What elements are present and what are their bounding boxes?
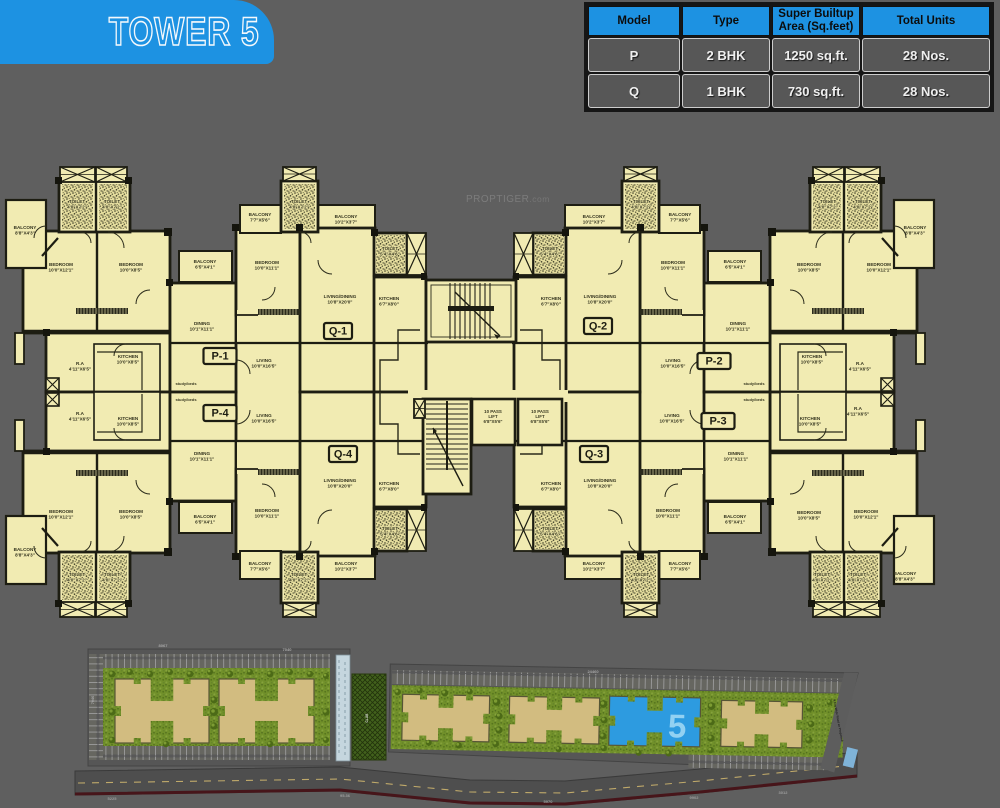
svg-text:KITCHEN6'7"X8'0": KITCHEN6'7"X8'0": [541, 296, 562, 306]
svg-text:KITCHEN6'7"X8'0": KITCHEN6'7"X8'0": [379, 296, 400, 306]
svg-text:BALCONY10'2"X3'7": BALCONY10'2"X3'7": [583, 561, 606, 571]
svg-text:5225: 5225: [108, 796, 118, 801]
svg-text:BALCONY6'5"X4'1": BALCONY6'5"X4'1": [194, 514, 217, 524]
svg-text:BALCONY10'2"X3'7": BALCONY10'2"X3'7": [335, 214, 358, 224]
svg-text:Q-2: Q-2: [589, 321, 607, 333]
svg-text:Q-4: Q-4: [334, 449, 353, 461]
svg-text:LIVING/DINING10'8"X20'0": LIVING/DINING10'8"X20'0": [584, 478, 617, 488]
svg-text:BEDROOM10'0"X8'5": BEDROOM10'0"X8'5": [119, 262, 143, 272]
svg-text:BALCONY6'5"X4'1": BALCONY6'5"X4'1": [194, 259, 217, 269]
svg-text:Q-1: Q-1: [329, 326, 347, 338]
svg-text:BALCONY8'8"X4'3": BALCONY8'8"X4'3": [14, 225, 37, 235]
svg-text:TOILET4'0"X7'2": TOILET4'0"X7'2": [67, 199, 87, 209]
svg-text:BEDROOM10'0"X11'1": BEDROOM10'0"X11'1": [656, 508, 681, 518]
svg-text:BEDROOM10'0"X12'1": BEDROOM10'0"X12'1": [49, 509, 74, 519]
svg-text:BALCONY6'5"X4'1": BALCONY6'5"X4'1": [724, 514, 747, 524]
svg-text:BALCONY8'8"X4'3": BALCONY8'8"X4'3": [904, 225, 927, 235]
svg-text:BALCONY6'5"X4'1": BALCONY6'5"X4'1": [724, 259, 747, 269]
svg-text:BEDROOM10'0"X11'1": BEDROOM10'0"X11'1": [255, 508, 280, 518]
svg-text:95.36: 95.36: [340, 793, 351, 798]
svg-text:BEDROOM10'0"X12'1": BEDROOM10'0"X12'1": [867, 262, 892, 272]
svg-text:CLUB: CLUB: [365, 713, 369, 723]
svg-text:BALCONY8'8"X4'3": BALCONY8'8"X4'3": [14, 547, 37, 557]
svg-text:5970: 5970: [544, 799, 554, 804]
svg-text:TOILET4'0"X7'2": TOILET4'0"X7'2": [853, 199, 873, 209]
svg-text:7040: 7040: [283, 647, 293, 652]
svg-text:KITCHEN10'0"X8'5": KITCHEN10'0"X8'5": [117, 416, 139, 426]
svg-text:P-2: P-2: [705, 356, 722, 368]
svg-text:BEDROOM10'0"X8'5": BEDROOM10'0"X8'5": [119, 509, 143, 519]
svg-text:LIVING/DINING10'8"X20'0": LIVING/DINING10'8"X20'0": [584, 294, 617, 304]
svg-text:KITCHEN6'7"X8'0": KITCHEN6'7"X8'0": [379, 481, 400, 491]
svg-text:BEDROOM10'0"X11'1": BEDROOM10'0"X11'1": [255, 260, 280, 270]
svg-text:7046: 7046: [91, 696, 95, 704]
svg-text:TOILET4'0"X7'2": TOILET4'0"X7'2": [848, 572, 868, 582]
svg-text:TOILET4'0"X7'2": TOILET4'0"X7'2": [102, 572, 122, 582]
svg-text:P-4: P-4: [211, 408, 229, 420]
svg-text:KITCHEN10'0"X8'5": KITCHEN10'0"X8'5": [801, 354, 823, 364]
svg-text:BALCONY7'7"X5'6": BALCONY7'7"X5'6": [249, 212, 272, 222]
svg-text:3012: 3012: [779, 790, 789, 795]
svg-text:BALCONY7'7"X5'6": BALCONY7'7"X5'6": [249, 561, 272, 571]
svg-text:TOILET5'4"X4'6": TOILET5'4"X4'6": [540, 526, 560, 536]
svg-text:KITCHEN10'0"X8'5": KITCHEN10'0"X8'5": [117, 354, 139, 364]
svg-text:study/beds: study/beds: [175, 397, 197, 402]
svg-text:TOILET4'0"X7'2": TOILET4'0"X7'2": [631, 572, 651, 582]
svg-text:BALCONY10'2"X3'7": BALCONY10'2"X3'7": [335, 561, 358, 571]
svg-text:BEDROOM10'0"X11'1": BEDROOM10'0"X11'1": [661, 260, 686, 270]
svg-text:BALCONY7'7"X5'6": BALCONY7'7"X5'6": [669, 212, 692, 222]
svg-text:BEDROOM10'0"X8'5": BEDROOM10'0"X8'5": [797, 262, 821, 272]
svg-text:TOILET4'0"X7'2": TOILET4'0"X7'2": [818, 199, 838, 209]
svg-text:study/beds: study/beds: [175, 381, 197, 386]
svg-text:Q-3: Q-3: [585, 449, 603, 461]
svg-text:PROPTIGER.com: PROPTIGER.com: [466, 194, 550, 205]
svg-text:BEDROOM10'0"X8'5": BEDROOM10'0"X8'5": [797, 510, 821, 520]
svg-text:TOILET4'0"X7'2": TOILET4'0"X7'2": [812, 572, 832, 582]
svg-text:P-1: P-1: [211, 351, 228, 363]
svg-text:BALCONY7'7"X5'6": BALCONY7'7"X5'6": [669, 561, 692, 571]
svg-text:TOILET4'0"X7'2": TOILET4'0"X7'2": [102, 199, 122, 209]
svg-text:LIVING/DINING10'8"X20'0": LIVING/DINING10'8"X20'0": [324, 478, 357, 488]
svg-text:24460: 24460: [587, 669, 599, 674]
svg-text:TOILET4'0"X7'2": TOILET4'0"X7'2": [631, 199, 651, 209]
svg-text:study/beds: study/beds: [743, 397, 765, 402]
svg-text:TOILET4'0"X7'2": TOILET4'0"X7'2": [289, 572, 309, 582]
svg-text:BALCONY8'8"X4'3": BALCONY8'8"X4'3": [894, 571, 917, 581]
svg-text:BEDROOM10'0"X12'1": BEDROOM10'0"X12'1": [854, 509, 879, 519]
svg-text:TOILET5'4"X4'6": TOILET5'4"X4'6": [380, 526, 400, 536]
svg-text:TOILET5'4"X4'6": TOILET5'4"X4'6": [540, 246, 560, 256]
svg-text:BALCONY10'2"X3'7": BALCONY10'2"X3'7": [583, 214, 606, 224]
svg-text:P-3: P-3: [709, 416, 726, 428]
svg-text:TOILET5'4"X4'6": TOILET5'4"X4'6": [380, 246, 400, 256]
svg-text:LIVING/DINING10'8"X20'0": LIVING/DINING10'8"X20'0": [324, 294, 357, 304]
svg-text:9902: 9902: [690, 795, 700, 800]
svg-text:KITCHEN10'0"X8'5": KITCHEN10'0"X8'5": [799, 416, 821, 426]
svg-text:BEDROOM10'0"X12'1": BEDROOM10'0"X12'1": [49, 262, 74, 272]
svg-text:study/beds: study/beds: [743, 381, 765, 386]
svg-text:TOILET4'0"X7'2": TOILET4'0"X7'2": [289, 199, 309, 209]
svg-text:TOILET4'0"X7'2": TOILET4'0"X7'2": [67, 572, 87, 582]
svg-text:5: 5: [668, 707, 687, 744]
svg-text:8067: 8067: [159, 643, 169, 648]
svg-text:KITCHEN6'7"X8'0": KITCHEN6'7"X8'0": [541, 481, 562, 491]
